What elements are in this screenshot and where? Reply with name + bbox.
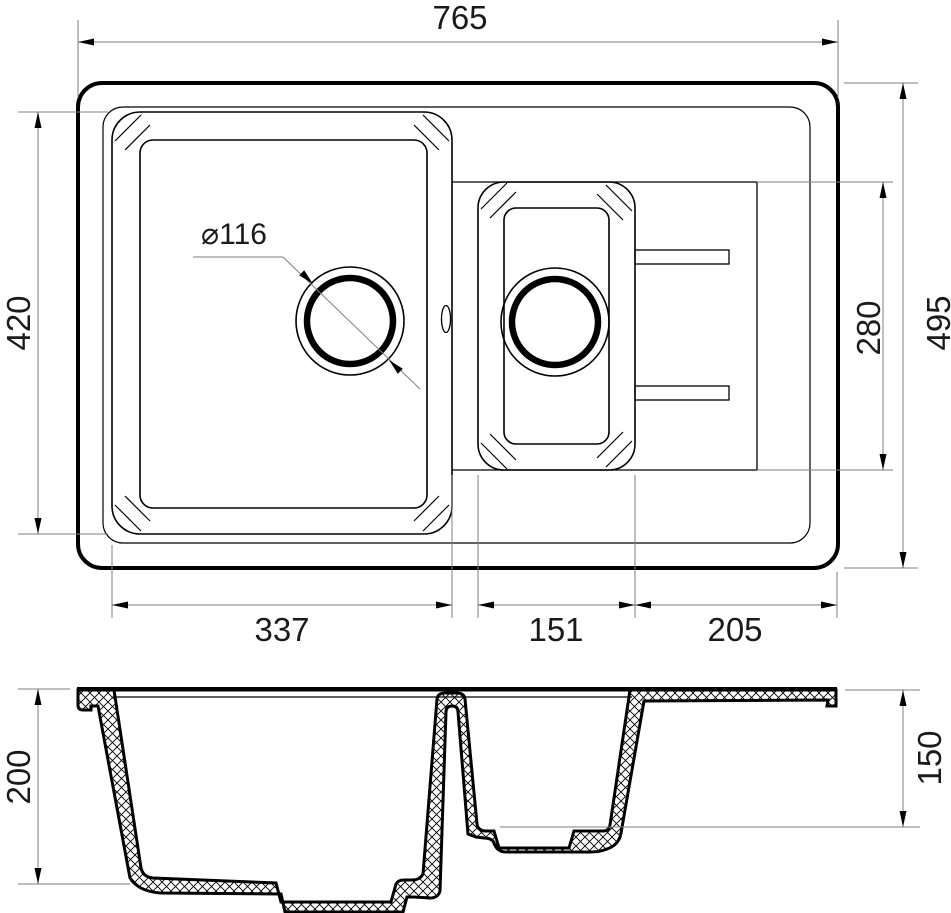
small-bowl-inner-edge [504,208,609,444]
drainboard-groove-top [635,250,729,264]
dim-small-bowl-section-depth-label: 150 [911,730,948,785]
drainboard [452,182,757,470]
dim-overall-width-label: 765 [432,0,487,36]
drainboard-groove-bottom [635,386,729,400]
small-bowl [478,182,635,470]
dim-main-bowl-width-label: 337 [254,611,309,648]
main-bowl-inner-edge [140,140,427,508]
sink-rim-inner-line [103,107,810,543]
dim-small-bowl-region-depth-label: 280 [850,300,887,355]
section-wall-hatched [78,690,836,912]
dim-main-bowl-section-depth-label: 200 [0,749,37,804]
main-bowl-outer-edge [112,112,452,534]
top-view [78,83,838,568]
main-bowl [112,112,452,534]
dim-overall-depth-label: 495 [920,295,951,350]
dim-drain-diameter-label: ⌀116 [201,218,267,251]
small-drain-hole [512,279,598,365]
sink-outer-outline [78,83,838,568]
section-view [77,689,837,912]
technical-drawing-canvas: 765 337 151 205 420 495 280 200 150 ⌀116 [0,0,951,913]
dim-drainboard-width-label: 205 [707,611,762,648]
overflow-hole [442,306,451,333]
dim-main-bowl-depth-label: 420 [0,295,37,350]
main-bowl-corner-chamfers [115,115,449,531]
drainboard-recess-outline [452,182,757,470]
sink-drawing-svg: 765 337 151 205 420 495 280 200 150 ⌀116 [0,0,951,913]
small-drain-outer-circle [501,268,609,376]
dim-small-bowl-width-label: 151 [528,611,583,648]
